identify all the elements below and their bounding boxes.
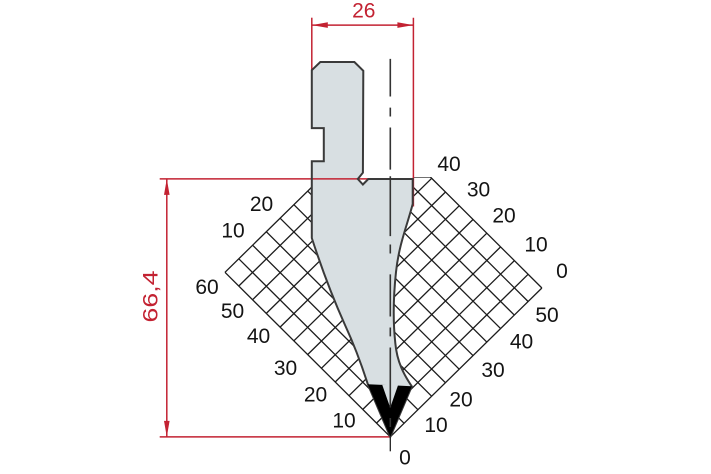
svg-text:30: 30 [467,179,490,202]
svg-text:66,4: 66,4 [140,270,163,322]
svg-text:30: 30 [274,357,297,380]
svg-text:10: 10 [424,414,447,437]
svg-text:50: 50 [221,300,244,323]
svg-text:10: 10 [221,220,244,243]
svg-text:40: 40 [437,153,460,176]
svg-text:50: 50 [535,304,558,327]
svg-text:60: 60 [195,276,218,299]
svg-text:0: 0 [399,447,411,470]
svg-text:10: 10 [524,234,547,257]
svg-text:0: 0 [556,260,568,283]
svg-text:20: 20 [492,205,515,228]
svg-text:40: 40 [247,325,270,348]
svg-text:20: 20 [449,389,472,412]
svg-text:40: 40 [510,331,533,354]
svg-text:26: 26 [352,0,375,23]
svg-text:30: 30 [481,359,504,382]
svg-text:10: 10 [332,410,355,433]
svg-text:20: 20 [250,193,273,216]
svg-text:20: 20 [304,384,327,407]
